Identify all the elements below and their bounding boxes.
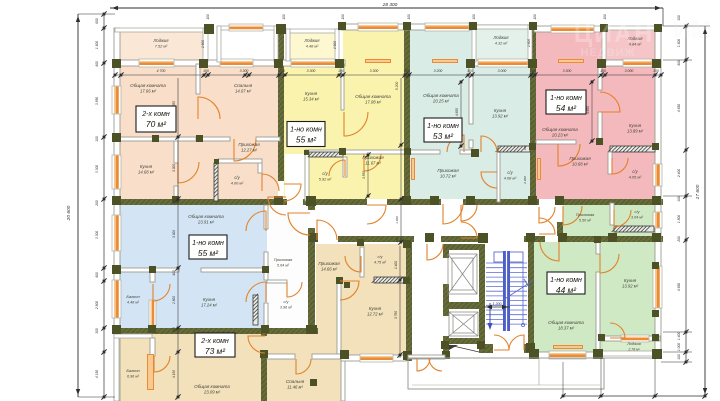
svg-text:200: 200 xyxy=(677,236,681,243)
svg-text:100: 100 xyxy=(467,69,473,73)
svg-text:Лоджия: Лоджия xyxy=(493,35,510,40)
svg-text:55 м²: 55 м² xyxy=(296,135,317,145)
svg-text:4 150: 4 150 xyxy=(172,370,176,378)
svg-text:14.07 м²: 14.07 м² xyxy=(235,89,252,94)
svg-text:14.68 м²: 14.68 м² xyxy=(138,170,155,175)
svg-text:23.09 м²: 23.09 м² xyxy=(203,390,221,395)
svg-text:12.27 м²: 12.27 м² xyxy=(241,148,258,153)
svg-text:4 700: 4 700 xyxy=(157,69,166,73)
svg-text:1 400: 1 400 xyxy=(394,261,398,269)
svg-text:3 300: 3 300 xyxy=(172,230,176,238)
svg-text:4.00 м²: 4.00 м² xyxy=(231,181,244,186)
svg-text:2-х комн: 2-х комн xyxy=(200,338,229,345)
svg-text:3 000: 3 000 xyxy=(625,69,634,73)
svg-text:3 300: 3 300 xyxy=(307,69,316,73)
svg-text:с/у: с/у xyxy=(632,169,638,174)
svg-text:10.72 м²: 10.72 м² xyxy=(440,174,457,179)
svg-text:Прихожая: Прихожая xyxy=(437,168,459,173)
svg-text:300: 300 xyxy=(653,69,659,73)
svg-text:Прихожая: Прихожая xyxy=(274,257,293,262)
svg-text:200: 200 xyxy=(278,69,285,73)
svg-text:300: 300 xyxy=(172,327,176,333)
svg-text:Лоджия: Лоджия xyxy=(304,38,321,43)
svg-text:4 650: 4 650 xyxy=(455,108,459,116)
svg-text:200: 200 xyxy=(403,69,410,73)
svg-text:Кухня: Кухня xyxy=(305,91,318,96)
svg-text:11.46 м²: 11.46 м² xyxy=(287,385,303,390)
svg-text:Прихожая: Прихожая xyxy=(362,155,384,160)
svg-text:5 200: 5 200 xyxy=(395,82,399,91)
svg-text:1-но комн: 1-но комн xyxy=(192,240,224,247)
svg-text:4.32 м²: 4.32 м² xyxy=(495,41,508,46)
svg-text:2 400: 2 400 xyxy=(523,176,527,185)
svg-text:200: 200 xyxy=(172,199,176,206)
svg-text:54 м²: 54 м² xyxy=(556,103,577,113)
svg-text:1-но комн: 1-но комн xyxy=(290,127,322,134)
svg-text:4 650: 4 650 xyxy=(586,106,590,114)
svg-text:15.34 м²: 15.34 м² xyxy=(303,97,320,102)
svg-text:Спальня: Спальня xyxy=(286,379,305,384)
svg-text:100: 100 xyxy=(341,14,345,20)
svg-text:ИМ: ИМ xyxy=(673,16,712,44)
svg-text:28 300: 28 300 xyxy=(382,2,398,8)
svg-text:1 600: 1 600 xyxy=(527,39,531,47)
svg-text:Общая комната: Общая комната xyxy=(188,214,224,219)
svg-text:Кухня: Кухня xyxy=(629,123,642,128)
svg-text:3 300: 3 300 xyxy=(370,69,379,73)
svg-text:3 300: 3 300 xyxy=(240,69,249,73)
svg-text:Балкон: Балкон xyxy=(126,294,140,299)
svg-text:13.92 м²: 13.92 м² xyxy=(622,284,639,289)
svg-text:Общая комната: Общая комната xyxy=(130,83,166,88)
svg-text:17.66 м²: 17.66 м² xyxy=(140,89,157,94)
svg-text:1 000: 1 000 xyxy=(677,343,681,351)
svg-text:Балкон: Балкон xyxy=(126,368,140,373)
svg-text:17.08 м²: 17.08 м² xyxy=(365,100,382,105)
svg-text:4.08 м²: 4.08 м² xyxy=(504,176,517,181)
svg-text:Общая комната: Общая комната xyxy=(355,94,391,99)
svg-text:44 м²: 44 м² xyxy=(556,285,577,295)
svg-text:Кухня: Кухня xyxy=(140,164,153,169)
svg-text:100: 100 xyxy=(95,136,99,142)
svg-text:2-х комн: 2-х комн xyxy=(141,111,170,118)
svg-text:100: 100 xyxy=(282,14,286,20)
svg-text:Кухня: Кухня xyxy=(624,278,637,283)
svg-text:Общая комната: Общая комната xyxy=(542,127,578,132)
svg-text:1 400: 1 400 xyxy=(677,332,681,340)
svg-text:11.67 м²: 11.67 м² xyxy=(365,161,381,166)
svg-text:18.37 м²: 18.37 м² xyxy=(558,326,575,331)
svg-text:Общая комната: Общая комната xyxy=(194,384,230,389)
svg-text:2 800: 2 800 xyxy=(172,296,176,305)
svg-text:4.48 м²: 4.48 м² xyxy=(127,301,140,305)
svg-text:4.48 м²: 4.48 м² xyxy=(306,44,319,49)
svg-text:7.52 м²: 7.52 м² xyxy=(155,44,168,49)
svg-text:ЦИАН: ЦИАН xyxy=(574,20,654,48)
svg-text:14.66 м²: 14.66 м² xyxy=(321,267,338,272)
svg-text:13.89 м²: 13.89 м² xyxy=(627,129,644,134)
svg-text:Спальня: Спальня xyxy=(234,83,253,88)
svg-text:17 600: 17 600 xyxy=(695,184,701,199)
svg-text:Кухня: Кухня xyxy=(203,297,216,302)
svg-text:6.96 м²: 6.96 м² xyxy=(127,375,140,379)
svg-text:Лоджия: Лоджия xyxy=(626,342,641,346)
svg-text:1 600: 1 600 xyxy=(333,41,337,49)
svg-text:200: 200 xyxy=(95,200,99,207)
svg-text:Прихожая: Прихожая xyxy=(569,156,591,161)
svg-text:2 800: 2 800 xyxy=(95,301,99,310)
svg-text:100: 100 xyxy=(677,354,681,360)
svg-text:100: 100 xyxy=(206,14,210,20)
svg-text:100: 100 xyxy=(407,14,411,20)
svg-text:3 750: 3 750 xyxy=(394,311,398,319)
svg-text:12.72 м²: 12.72 м² xyxy=(367,312,384,317)
svg-text:300: 300 xyxy=(95,328,99,334)
svg-text:Кухня: Кухня xyxy=(369,306,382,311)
svg-text:Прихожая: Прихожая xyxy=(318,261,340,266)
svg-text:3.96 м²: 3.96 м² xyxy=(280,306,293,310)
svg-text:3 550: 3 550 xyxy=(362,171,366,179)
svg-text:с/у: с/у xyxy=(234,175,240,180)
svg-text:3 200: 3 200 xyxy=(434,69,443,73)
svg-text:1-но комн: 1-но комн xyxy=(427,123,459,130)
svg-text:3 850: 3 850 xyxy=(95,97,99,105)
svg-text:20.23 м²: 20.23 м² xyxy=(551,133,569,138)
svg-text:100: 100 xyxy=(677,196,681,202)
svg-text:100: 100 xyxy=(338,69,344,73)
svg-text:600: 600 xyxy=(95,18,99,24)
svg-text:1 800: 1 800 xyxy=(677,215,681,223)
svg-text:1 600: 1 600 xyxy=(95,41,99,49)
svg-text:10.68 м²: 10.68 м² xyxy=(572,162,589,167)
svg-text:100: 100 xyxy=(603,14,607,20)
svg-text:НЕДВИЖ: НЕДВИЖ xyxy=(581,47,636,59)
svg-text:5.64 м²: 5.64 м² xyxy=(277,264,290,268)
svg-text:3 300: 3 300 xyxy=(95,231,99,239)
svg-text:23.91 м²: 23.91 м² xyxy=(197,220,215,225)
svg-text:2.78 м²: 2.78 м² xyxy=(627,348,640,352)
svg-text:1-но комн: 1-но комн xyxy=(550,95,582,102)
svg-text:5.92 м²: 5.92 м² xyxy=(319,177,332,182)
svg-text:4 650: 4 650 xyxy=(677,104,681,112)
svg-text:3 300: 3 300 xyxy=(563,69,572,73)
svg-text:400: 400 xyxy=(677,60,681,66)
svg-text:400: 400 xyxy=(95,61,99,67)
svg-text:1-но комн: 1-но комн xyxy=(550,277,582,284)
svg-text:Прихожая: Прихожая xyxy=(576,212,595,217)
svg-text:3.04 м²: 3.04 м² xyxy=(631,216,644,220)
svg-text:13.92 м²: 13.92 м² xyxy=(492,114,509,119)
svg-text:2 400: 2 400 xyxy=(677,169,681,178)
svg-text:200: 200 xyxy=(395,237,399,243)
svg-text:Общая комната: Общая комната xyxy=(423,93,459,98)
svg-text:1 400: 1 400 xyxy=(395,216,399,224)
svg-text:Общая комната: Общая комната xyxy=(548,320,584,325)
svg-text:73 м²: 73 м² xyxy=(205,346,226,356)
svg-text:100: 100 xyxy=(533,14,537,20)
svg-text:Лоджия: Лоджия xyxy=(153,38,170,43)
svg-text:100: 100 xyxy=(600,69,606,73)
svg-text:Кухня: Кухня xyxy=(494,108,507,113)
svg-text:с/у: с/у xyxy=(322,171,328,176)
svg-text:100: 100 xyxy=(203,69,209,73)
svg-text:100: 100 xyxy=(472,14,476,20)
svg-text:с/у: с/у xyxy=(507,170,513,175)
svg-text:400: 400 xyxy=(172,270,176,276)
svg-text:5.50 м²: 5.50 м² xyxy=(579,219,592,223)
svg-text:3 000: 3 000 xyxy=(498,69,507,73)
svg-text:200: 200 xyxy=(529,69,536,73)
svg-text:4.05 м²: 4.05 м² xyxy=(629,175,642,180)
svg-text:53 м²: 53 м² xyxy=(433,131,454,141)
svg-text:20 600: 20 600 xyxy=(66,205,72,221)
svg-text:3 300: 3 300 xyxy=(95,165,99,173)
svg-text:Прихожая: Прихожая xyxy=(238,142,260,147)
svg-text:1 600: 1 600 xyxy=(201,40,205,48)
svg-text:4 650: 4 650 xyxy=(677,283,681,291)
svg-text:3 300: 3 300 xyxy=(172,164,176,172)
svg-text:55 м²: 55 м² xyxy=(198,248,219,258)
svg-text:17.24 м²: 17.24 м² xyxy=(201,303,218,308)
svg-text:1 200: 1 200 xyxy=(493,302,502,306)
svg-text:4 150: 4 150 xyxy=(95,370,99,378)
svg-text:20.25 м²: 20.25 м² xyxy=(432,99,450,104)
svg-text:100: 100 xyxy=(523,145,527,150)
svg-text:4.75 м²: 4.75 м² xyxy=(374,261,387,265)
svg-text:70 м²: 70 м² xyxy=(146,119,167,129)
svg-text:400: 400 xyxy=(95,272,99,278)
